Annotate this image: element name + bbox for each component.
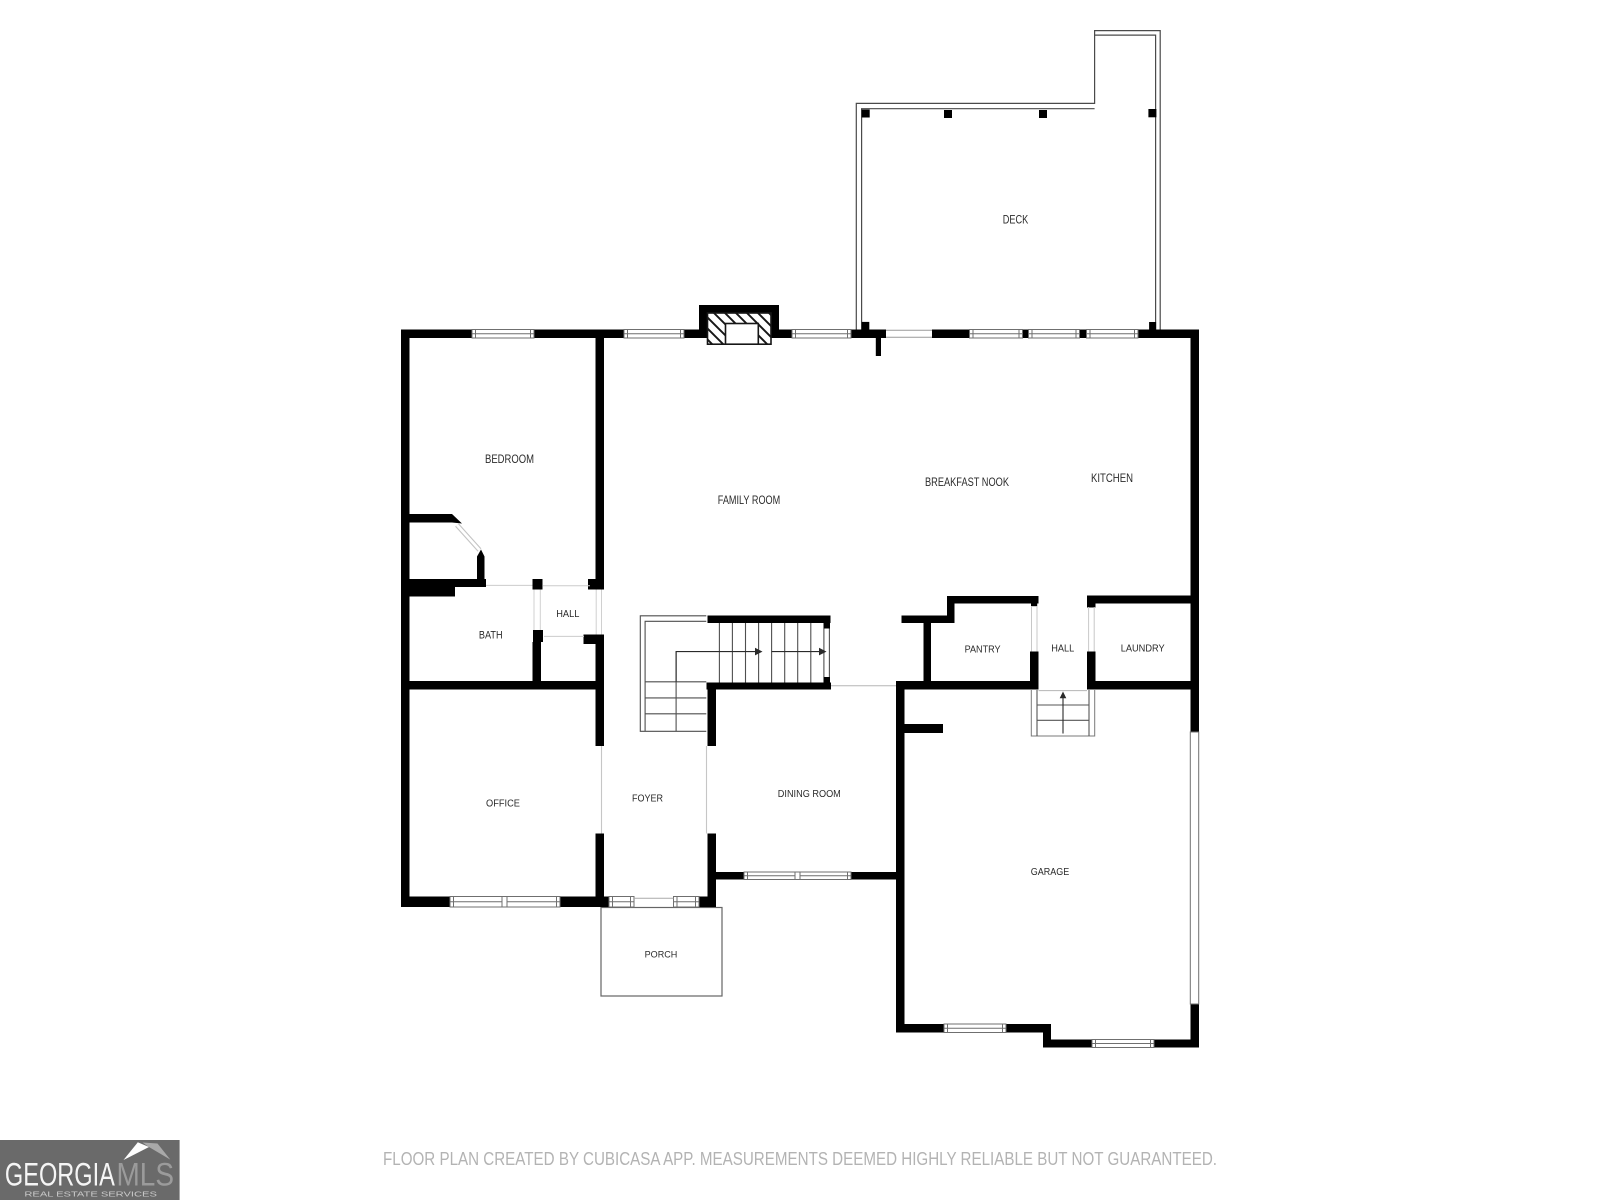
svg-text:HALL: HALL [1051,644,1074,655]
svg-text:FLOOR PLAN CREATED BY CUBICASA: FLOOR PLAN CREATED BY CUBICASA APP. MEAS… [383,1148,1217,1169]
svg-text:MLS: MLS [117,1156,175,1192]
svg-text:KITCHEN: KITCHEN [1091,471,1133,485]
svg-text:FAMILY ROOM: FAMILY ROOM [718,493,780,507]
svg-text:FOYER: FOYER [632,794,663,805]
svg-text:LAUNDRY: LAUNDRY [1121,644,1165,655]
svg-text:GARAGE: GARAGE [1031,867,1070,878]
svg-text:REAL ESTATE SERVICES: REAL ESTATE SERVICES [24,1190,157,1199]
svg-text:PORCH: PORCH [645,949,678,959]
svg-text:OFFICE: OFFICE [486,798,520,809]
svg-text:PANTRY: PANTRY [965,644,1001,655]
svg-text:DECK: DECK [1003,213,1029,227]
svg-text:HALL: HALL [556,609,579,620]
svg-text:BEDROOM: BEDROOM [485,452,534,466]
svg-text:GEORGIA: GEORGIA [5,1156,115,1192]
svg-text:BATH: BATH [479,629,503,641]
svg-text:DINING ROOM: DINING ROOM [778,789,841,800]
svg-text:BREAKFAST NOOK: BREAKFAST NOOK [925,475,1009,489]
